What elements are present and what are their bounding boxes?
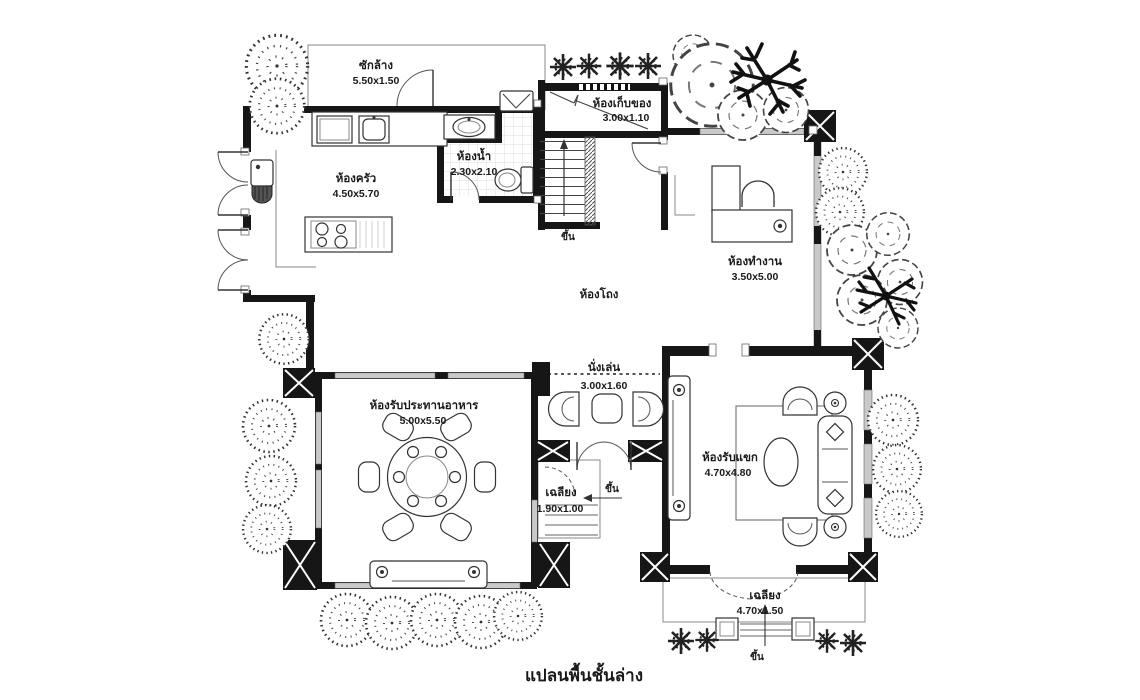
small-porch-label: เฉลียง (545, 486, 577, 499)
shrub (815, 629, 838, 652)
small-porch-up-label: ขึ้น (605, 481, 619, 495)
bush (873, 445, 921, 493)
office-chair (742, 181, 774, 207)
kitchen-counter (312, 112, 447, 146)
living-console-bench (668, 376, 690, 520)
armchair (783, 387, 817, 415)
dining-set (359, 410, 496, 543)
dining-chair (380, 510, 416, 543)
office-dim: 3.50x5.00 (732, 271, 779, 283)
shrub (695, 628, 718, 651)
bush (246, 456, 296, 506)
laundry-label: ซักล้าง (359, 59, 393, 72)
bathroom-sink (444, 115, 495, 139)
bush (876, 491, 922, 537)
bush (494, 592, 542, 640)
column (628, 440, 664, 462)
tree (867, 213, 910, 256)
column (283, 540, 317, 590)
sitting-dim: 3.00x1.60 (581, 380, 628, 392)
living-label: ห้องรับแขก (702, 451, 758, 464)
bush (243, 505, 291, 553)
kitchen-label: ห้องครัว (336, 172, 376, 185)
large-porch-up-label: ขึ้น (750, 649, 764, 663)
bush (259, 314, 308, 363)
sitting-chairs (549, 392, 664, 426)
floor-plan-drawing: ซักล้าง 5.50x1.50 ห้องครัว 4.50x5.70 ห้อ… (0, 0, 1140, 700)
bush (321, 594, 373, 646)
bush (868, 395, 918, 445)
armchair (783, 518, 817, 546)
dining-chair (475, 462, 496, 492)
living-door-gap (713, 344, 745, 358)
bush (366, 597, 418, 649)
column (852, 338, 884, 370)
column (640, 552, 670, 582)
dining-chair (359, 462, 380, 492)
shrub (840, 630, 866, 656)
large-porch-dim: 4.70x1.50 (737, 605, 784, 617)
dining-label: ห้องรับประทานอาหาร (370, 399, 480, 412)
column (283, 368, 315, 398)
floor-plan-page: ซักล้าง 5.50x1.50 ห้องครัว 4.50x5.70 ห้อ… (0, 0, 1140, 700)
living-sofa-set (736, 387, 852, 546)
main-staircase (540, 137, 595, 225)
wall-sink-unit (251, 160, 273, 203)
storage-dim: 3.00x1.10 (603, 112, 650, 124)
storage-label: ห้องเก็บของ (593, 95, 652, 110)
coffee-table (764, 438, 798, 486)
kitchen-island-stove (305, 217, 392, 252)
sitting-table (592, 394, 622, 423)
plan-title: แปลนพื้นชั้นล่าง (525, 662, 643, 685)
dining-window-bench (370, 561, 487, 588)
office-label: ห้องทำงาน (728, 254, 782, 268)
bathroom-dim: 2.30x2.10 (451, 166, 498, 178)
stair-railing (585, 137, 595, 225)
bush (250, 79, 305, 134)
living-dim: 4.70x4.80 (705, 467, 752, 479)
shrub (577, 54, 602, 79)
column (538, 542, 570, 588)
shrub (635, 53, 661, 79)
small-porch-dim: 1.90x1.00 (537, 503, 584, 515)
storage-vent-window (577, 84, 630, 90)
hall-label: ห้องโถง (580, 286, 619, 301)
tree (764, 88, 809, 133)
dining-chair (438, 510, 474, 543)
sitting-label: นั่งเล่น (588, 358, 620, 374)
shrub (550, 54, 576, 80)
column (536, 440, 570, 462)
bush (243, 400, 295, 452)
stairs-up-label: ขึ้น (561, 229, 575, 243)
toilet (495, 167, 533, 193)
shrub (668, 628, 694, 654)
office-partition-line (675, 175, 695, 215)
washing-machine (500, 91, 533, 111)
large-porch-label: เฉลียง (749, 589, 781, 602)
laundry-dim: 5.50x1.50 (353, 75, 400, 87)
column (848, 552, 878, 582)
shrub (606, 52, 633, 79)
kitchen-dim: 4.50x5.70 (333, 188, 380, 200)
dining-dim: 5.00x5.50 (400, 415, 447, 427)
